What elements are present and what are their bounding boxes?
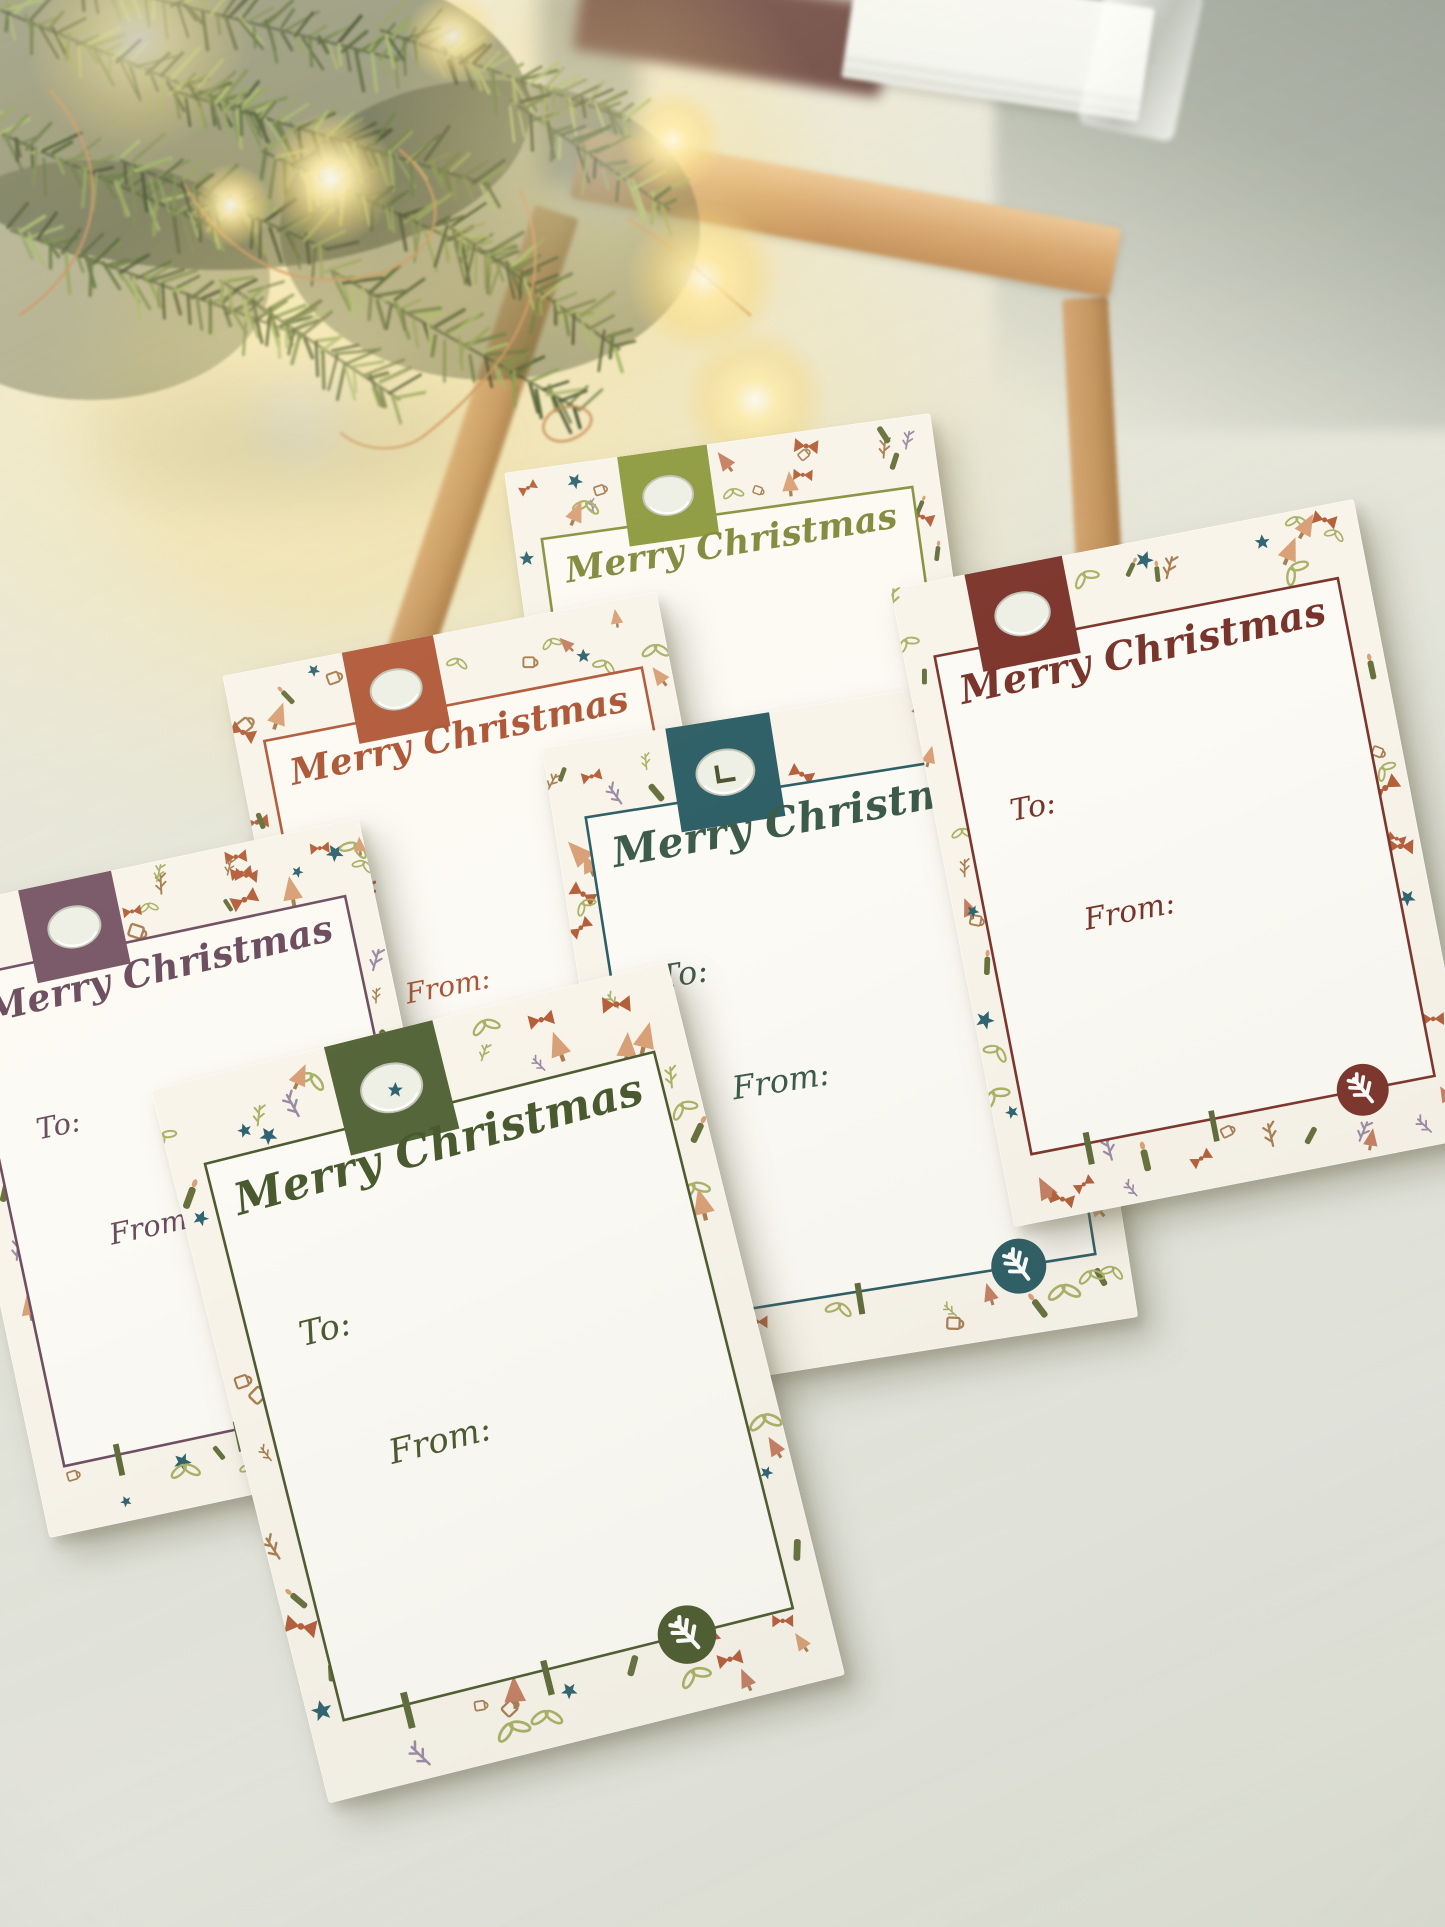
motif-candle-icon xyxy=(922,669,927,685)
motif-candle-icon xyxy=(793,1539,801,1561)
photo-scene: Merry ChristmasTo:From:Merry ChristmasTo… xyxy=(0,0,1445,1927)
pine-branch xyxy=(0,0,770,500)
